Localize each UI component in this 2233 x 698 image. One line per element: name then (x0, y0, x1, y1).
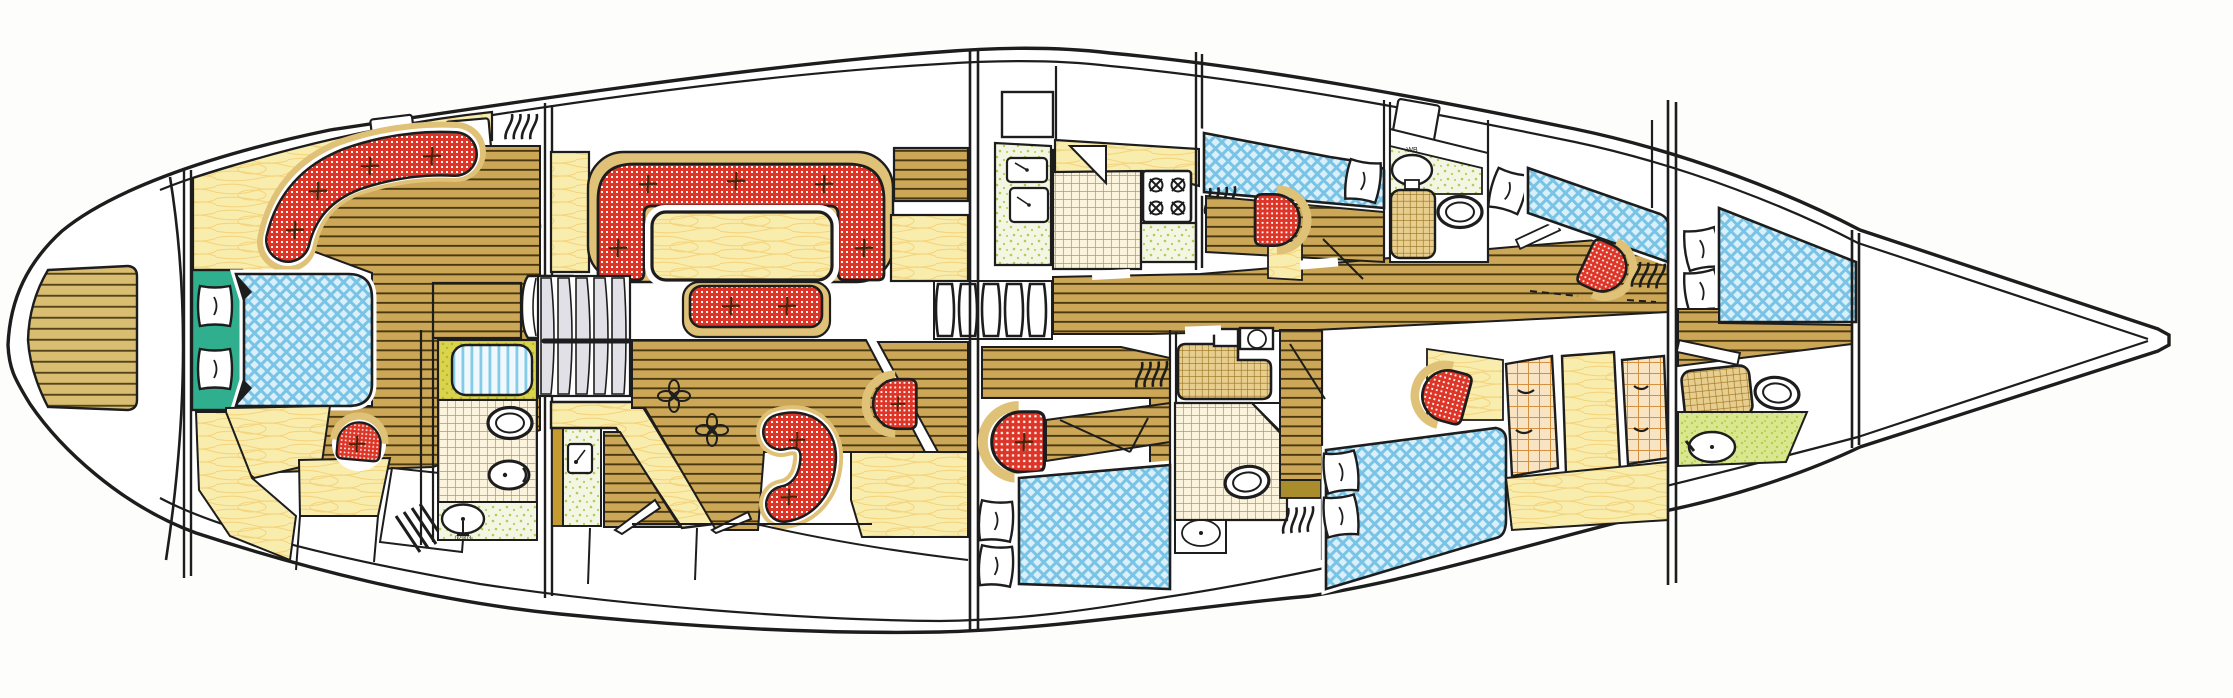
svg-text:WB: WB (1406, 147, 1418, 154)
svg-text:02903: 02903 (455, 536, 472, 542)
